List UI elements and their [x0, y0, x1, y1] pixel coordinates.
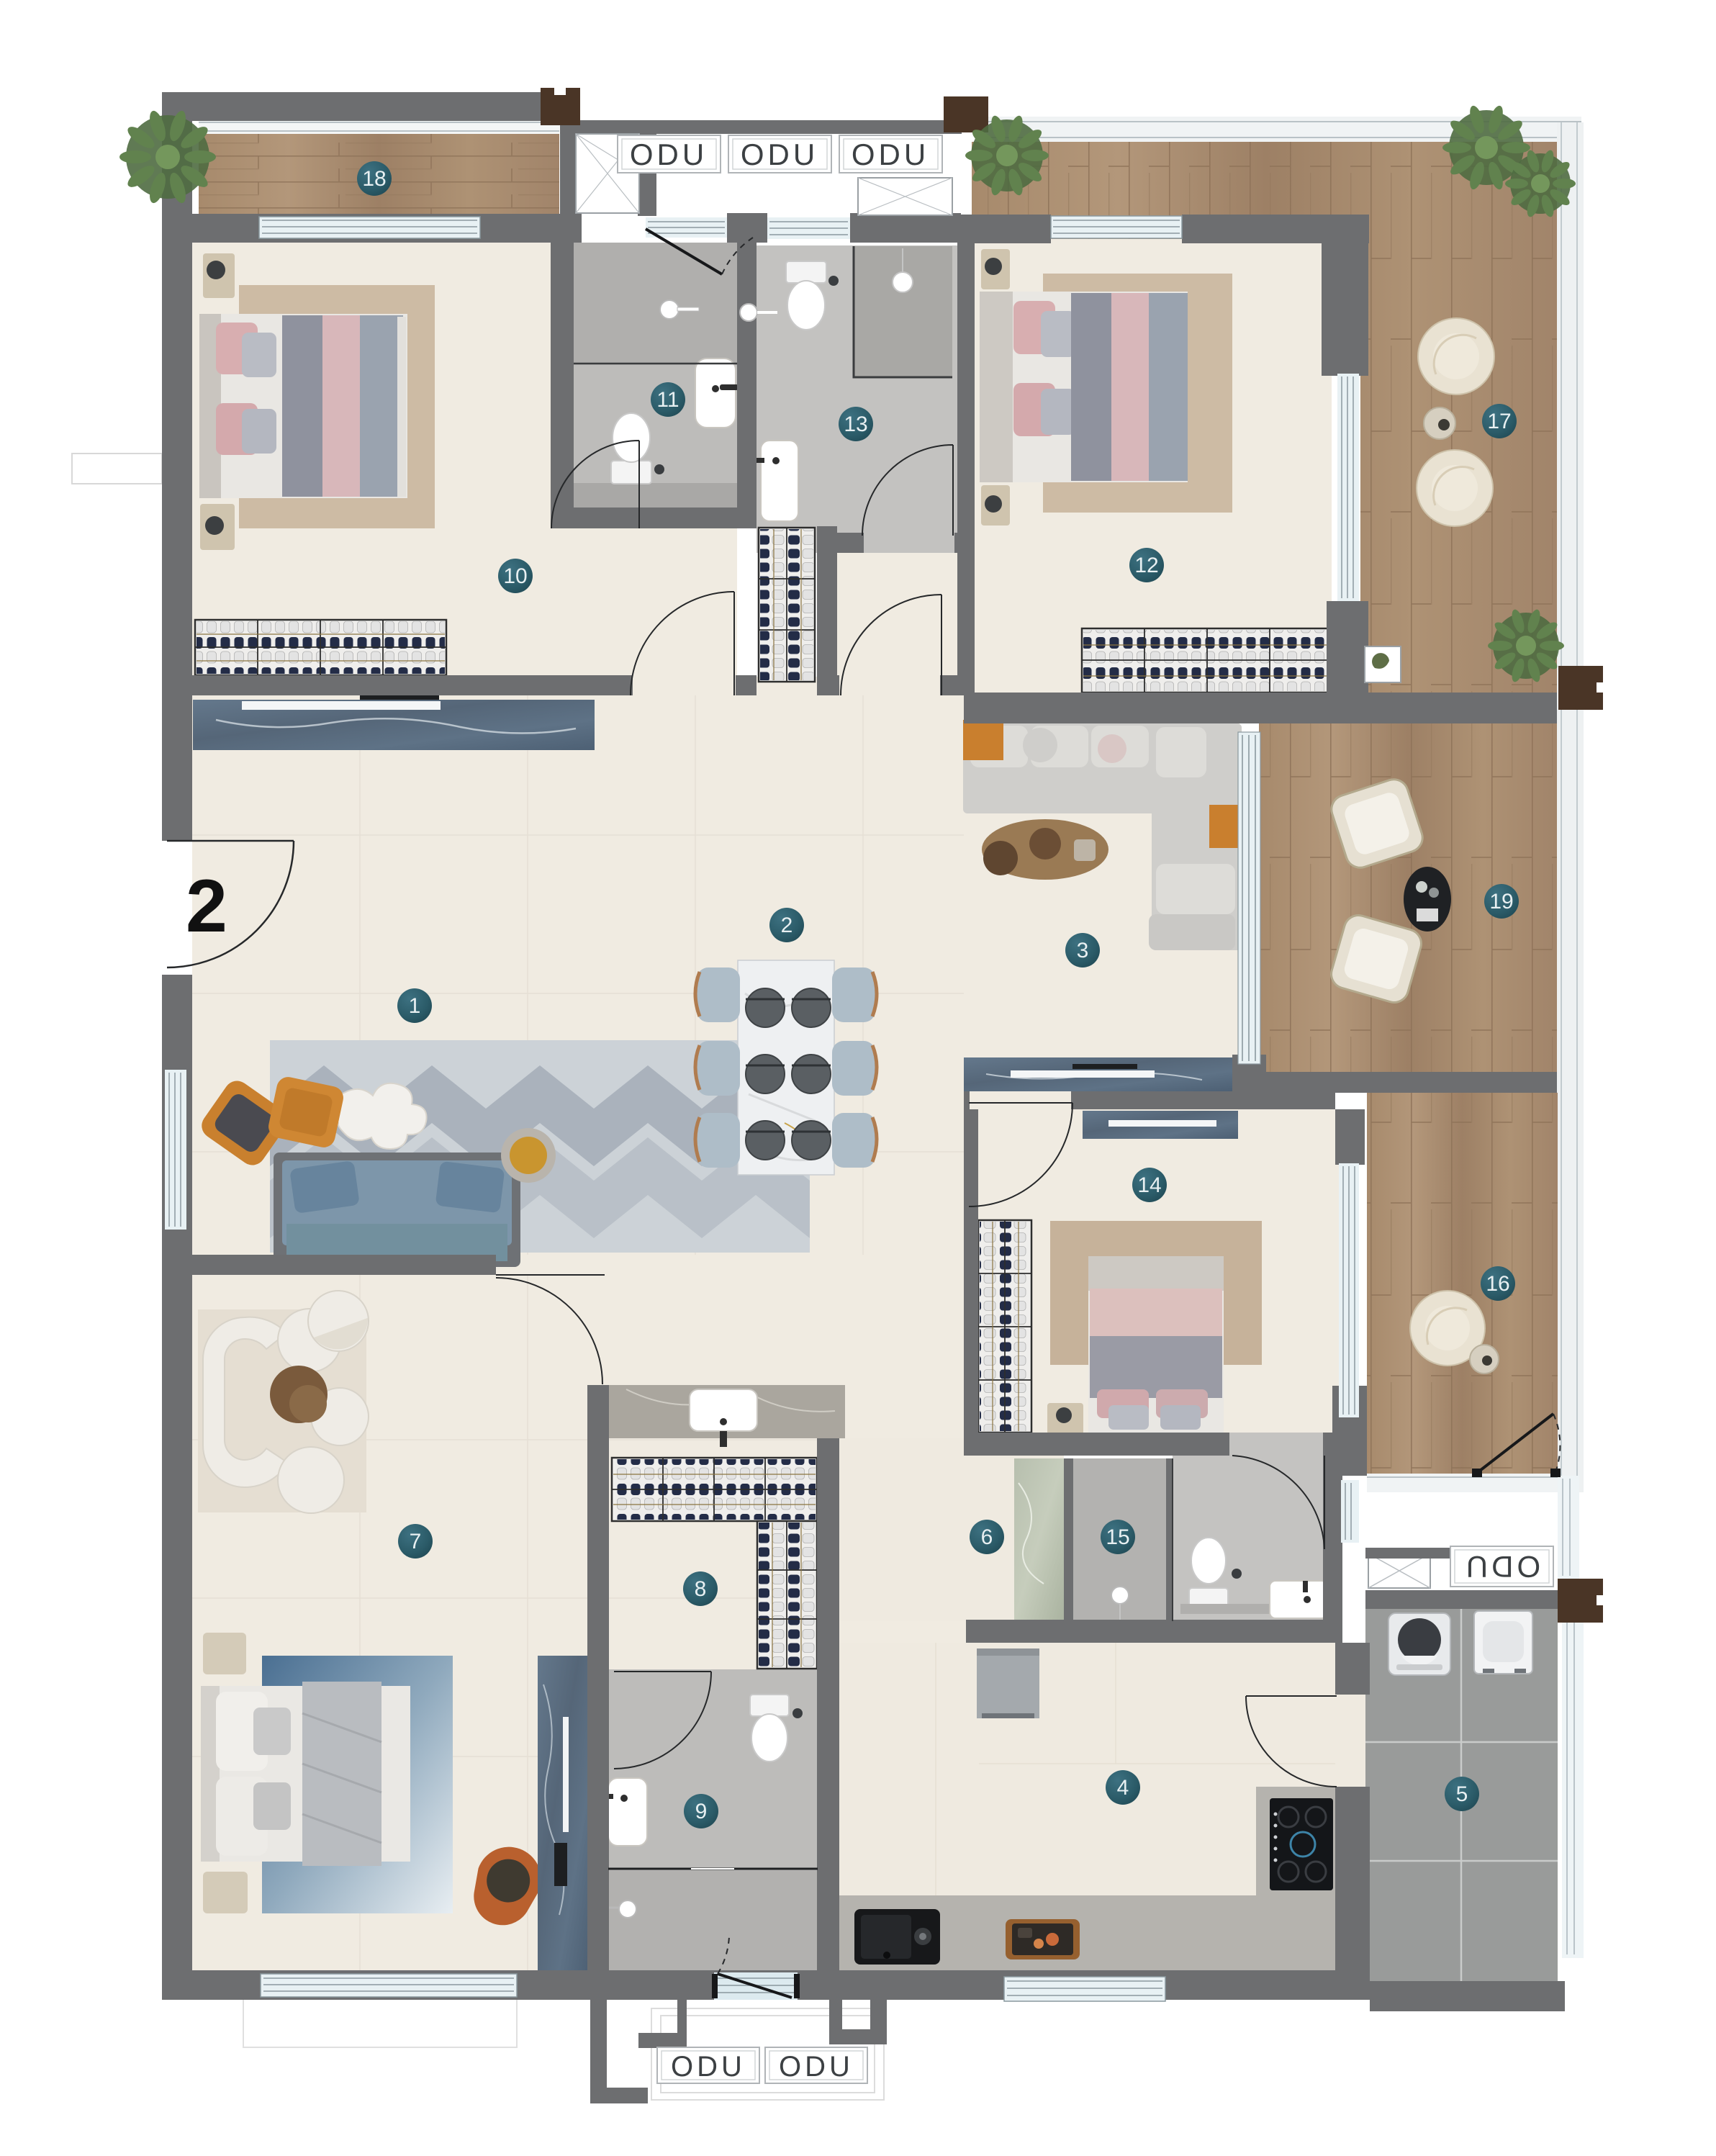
- svg-text:ODU: ODU: [741, 137, 818, 171]
- svg-text:4: 4: [1117, 1776, 1129, 1800]
- svg-text:17: 17: [1487, 410, 1511, 433]
- svg-text:ODU: ODU: [1463, 1550, 1540, 1584]
- svg-text:14: 14: [1137, 1173, 1161, 1197]
- svg-text:6: 6: [981, 1525, 993, 1549]
- svg-text:11: 11: [656, 388, 679, 412]
- svg-text:ODU: ODU: [852, 137, 929, 171]
- svg-text:2: 2: [781, 914, 793, 937]
- svg-text:15: 15: [1106, 1525, 1129, 1549]
- svg-text:ODU: ODU: [779, 2051, 854, 2083]
- svg-text:12: 12: [1134, 554, 1158, 577]
- svg-text:ODU: ODU: [671, 2051, 746, 2083]
- svg-text:7: 7: [410, 1530, 422, 1553]
- svg-text:1: 1: [409, 994, 421, 1018]
- svg-text:13: 13: [844, 412, 867, 436]
- svg-text:ODU: ODU: [630, 137, 708, 171]
- svg-text:16: 16: [1486, 1272, 1509, 1296]
- svg-text:19: 19: [1489, 890, 1513, 914]
- svg-text:9: 9: [695, 1800, 708, 1823]
- svg-text:8: 8: [695, 1577, 707, 1601]
- svg-text:10: 10: [503, 564, 527, 588]
- svg-text:2: 2: [186, 865, 227, 948]
- svg-text:5: 5: [1456, 1782, 1468, 1806]
- svg-text:18: 18: [362, 167, 386, 191]
- svg-text:3: 3: [1077, 939, 1089, 962]
